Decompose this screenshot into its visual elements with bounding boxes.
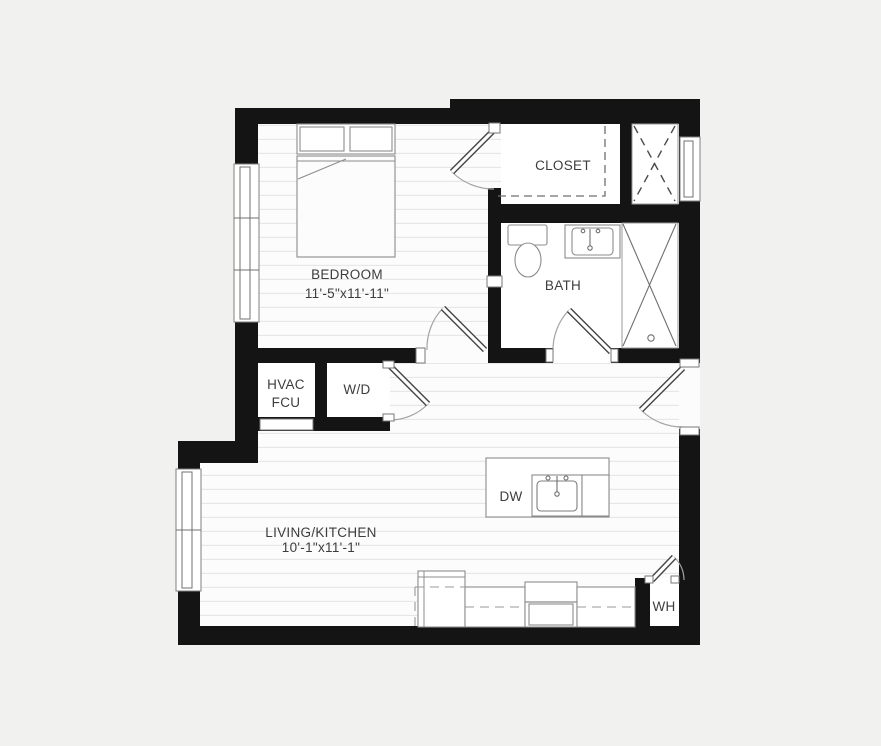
bathroom-sink xyxy=(565,225,620,258)
door-jamb xyxy=(546,349,553,362)
closet-label: CLOSET xyxy=(535,158,591,173)
door-jamb xyxy=(645,576,653,583)
wall-segment xyxy=(450,99,700,109)
bedroom-dims: 11'-5"x11'-11" xyxy=(305,286,389,301)
hvac-access-panel xyxy=(260,419,313,430)
bedroom-window xyxy=(234,164,259,322)
island-cabinet xyxy=(582,475,609,516)
wall-segment xyxy=(178,626,700,645)
wall-jamb xyxy=(487,276,502,287)
door-jamb xyxy=(383,361,394,368)
wall-segment xyxy=(257,348,425,363)
water-heater-label: WH xyxy=(652,599,675,614)
dishwasher-label: DW xyxy=(499,489,522,504)
floor-plan-page: BEDROOM 11'-5"x11'-11" CLOSET BATH HVAC … xyxy=(0,0,881,746)
wall-segment xyxy=(501,348,553,363)
pillow xyxy=(300,127,344,151)
door-jamb xyxy=(611,349,618,362)
pillow xyxy=(350,127,392,151)
door-jamb xyxy=(680,427,699,435)
living-window xyxy=(176,469,201,591)
living-kitchen-label: LIVING/KITCHEN xyxy=(265,525,376,540)
wall-segment xyxy=(235,108,700,124)
door-jamb xyxy=(671,576,679,583)
bath-label: BATH xyxy=(545,278,581,293)
wall-segment xyxy=(488,204,700,223)
door-jamb xyxy=(416,348,425,363)
floor-plan: BEDROOM 11'-5"x11'-11" CLOSET BATH HVAC … xyxy=(0,0,881,746)
door-jamb xyxy=(383,414,394,421)
wall-segment xyxy=(620,124,632,204)
bath-door-opening xyxy=(553,348,611,363)
shower-drain xyxy=(648,335,654,341)
bedroom-label: BEDROOM xyxy=(311,267,383,282)
hvac-label-line1: HVAC xyxy=(267,377,305,392)
bed xyxy=(297,124,395,257)
wall-segment xyxy=(315,363,327,423)
door-jamb xyxy=(489,123,500,133)
hvac-label-line2: FCU xyxy=(272,395,301,410)
bedroom-door-opening xyxy=(425,348,488,363)
kitchen-island xyxy=(486,458,609,517)
refrigerator xyxy=(418,571,465,627)
shaft xyxy=(632,124,678,204)
shaft-window xyxy=(680,137,700,201)
wall-segment xyxy=(635,578,650,627)
range xyxy=(525,582,577,627)
wd-label: W/D xyxy=(343,382,370,397)
shower xyxy=(622,223,678,348)
door-jamb xyxy=(680,359,699,367)
mattress xyxy=(297,156,395,257)
living-kitchen-dims: 10'-1"x11'-1" xyxy=(282,540,360,555)
